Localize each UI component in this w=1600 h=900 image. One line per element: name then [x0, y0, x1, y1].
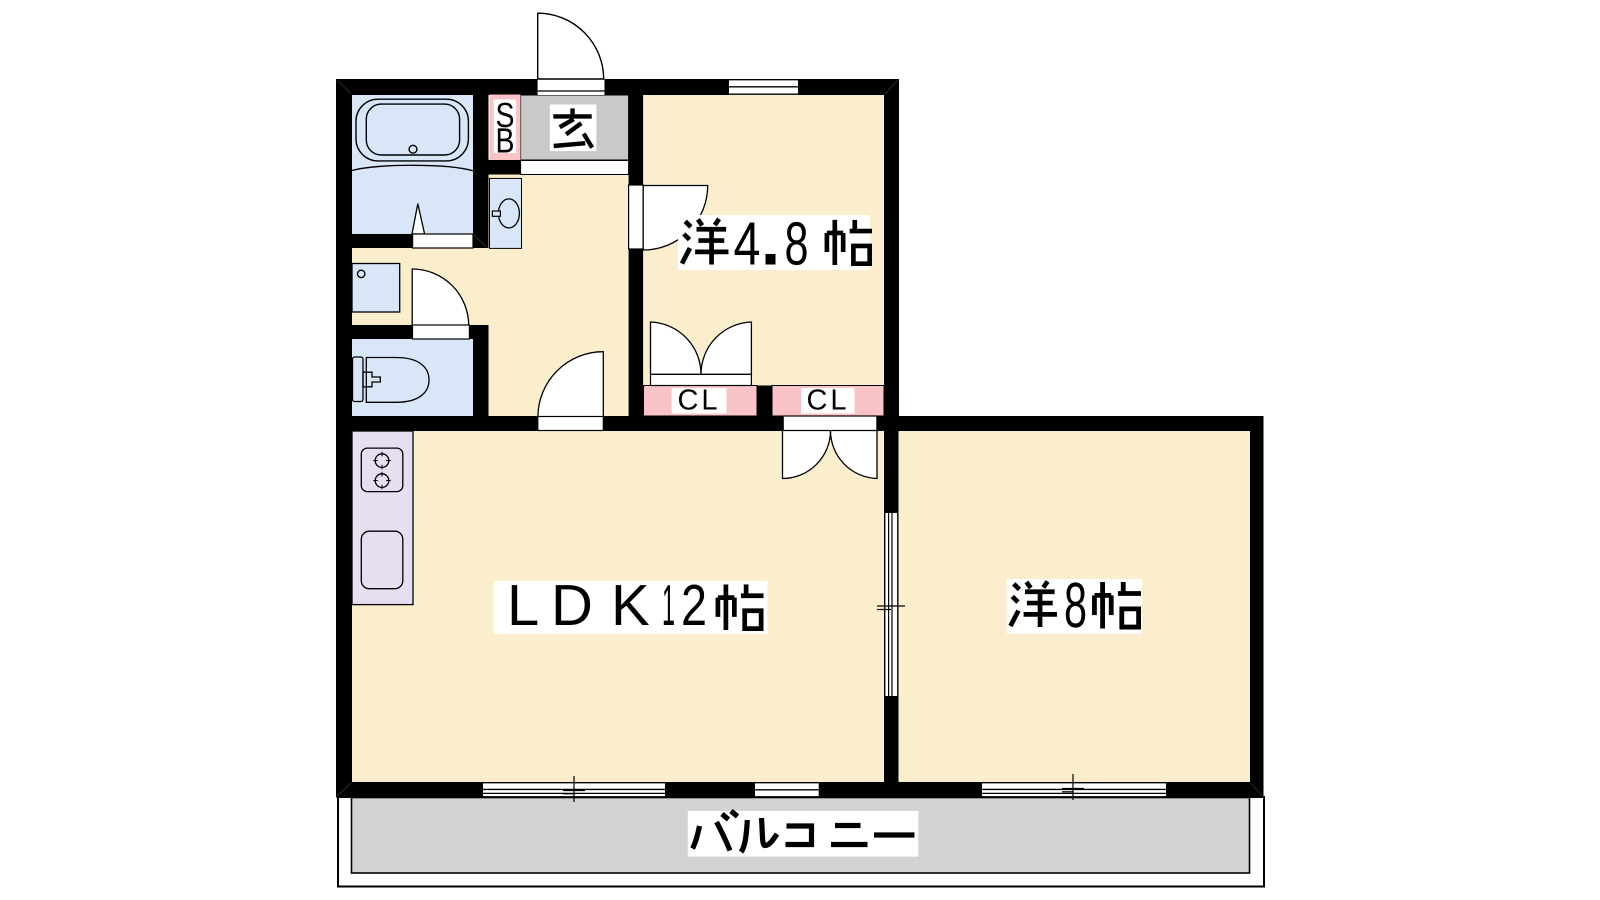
- svg-text:8: 8: [785, 210, 809, 278]
- svg-text:8: 8: [1064, 569, 1087, 641]
- svg-text:D: D: [551, 573, 593, 638]
- svg-text:CL: CL: [806, 385, 849, 417]
- svg-text:CL: CL: [677, 385, 720, 417]
- svg-text:L: L: [507, 573, 539, 638]
- svg-text:K: K: [611, 573, 650, 638]
- svg-text:2: 2: [681, 573, 707, 638]
- svg-text:4: 4: [734, 210, 761, 278]
- svg-text:1: 1: [662, 573, 675, 638]
- svg-text:B: B: [496, 122, 515, 161]
